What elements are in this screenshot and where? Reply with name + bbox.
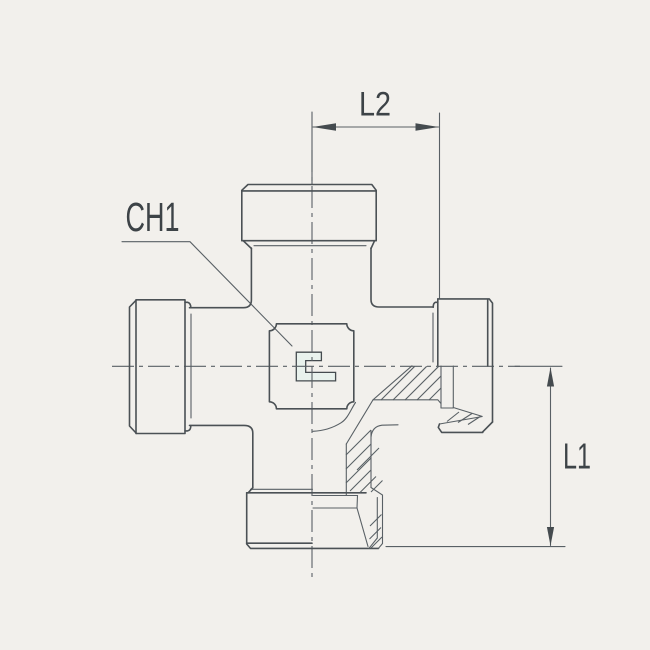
svg-text:L1: L1 bbox=[563, 436, 591, 477]
svg-text:L2: L2 bbox=[359, 86, 391, 124]
svg-text:CH1: CH1 bbox=[126, 194, 180, 240]
